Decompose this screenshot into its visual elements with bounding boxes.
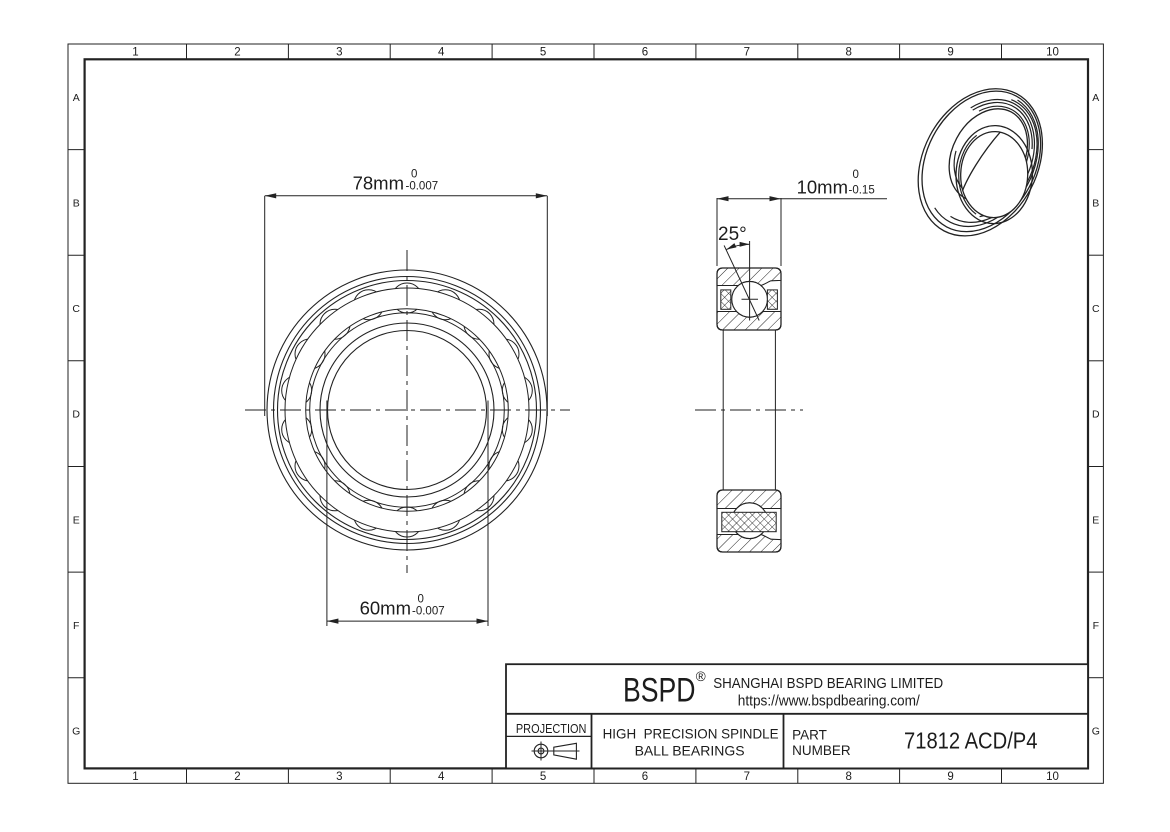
svg-text:9: 9 [947, 771, 953, 783]
svg-text:2: 2 [234, 771, 240, 783]
svg-text:0: 0 [853, 169, 859, 181]
svg-text:PART: PART [792, 728, 827, 743]
svg-text:®: ® [696, 669, 706, 684]
svg-text:C: C [1092, 303, 1100, 315]
svg-text:B: B [73, 197, 80, 209]
svg-text:0: 0 [418, 594, 424, 606]
svg-text:6: 6 [642, 771, 648, 783]
svg-text:E: E [1092, 514, 1099, 526]
svg-text:BSPD: BSPD [623, 672, 696, 710]
svg-text:60mm: 60mm [360, 598, 411, 619]
svg-text:4: 4 [438, 771, 445, 783]
svg-text:HIGH PRECISION SPINDLE: HIGH PRECISION SPINDLE [603, 726, 779, 742]
svg-text:78mm: 78mm [353, 173, 404, 194]
svg-text:D: D [72, 409, 80, 421]
svg-text:1: 1 [132, 47, 138, 59]
svg-text:6: 6 [642, 47, 648, 59]
svg-text:-0.15: -0.15 [849, 184, 875, 196]
svg-text:71812 ACD/P4: 71812 ACD/P4 [904, 728, 1038, 754]
svg-text:8: 8 [845, 47, 851, 59]
svg-text:10: 10 [1046, 47, 1059, 59]
svg-text:A: A [1092, 92, 1099, 104]
svg-text:PROJECTION: PROJECTION [516, 722, 587, 736]
svg-text:A: A [73, 92, 80, 104]
svg-text:0: 0 [411, 169, 417, 181]
svg-text:E: E [73, 514, 80, 526]
svg-text:C: C [72, 303, 80, 315]
svg-text:5: 5 [540, 47, 546, 59]
svg-text:7: 7 [744, 771, 750, 783]
svg-text:SHANGHAI BSPD BEARING LIMITED: SHANGHAI BSPD BEARING LIMITED [713, 675, 943, 692]
svg-text:F: F [1093, 620, 1099, 632]
svg-text:-0.007: -0.007 [406, 181, 439, 193]
svg-text:10: 10 [1046, 771, 1059, 783]
svg-text:9: 9 [947, 47, 953, 59]
svg-text:-0.007: -0.007 [412, 606, 445, 618]
svg-text:4: 4 [438, 47, 445, 59]
svg-text:1: 1 [132, 771, 138, 783]
svg-text:G: G [1092, 726, 1100, 738]
svg-text:5: 5 [540, 771, 546, 783]
svg-text:3: 3 [336, 47, 342, 59]
svg-text:2: 2 [234, 47, 240, 59]
svg-text:F: F [73, 620, 79, 632]
svg-text:10mm: 10mm [797, 176, 848, 197]
svg-text:G: G [72, 726, 80, 738]
svg-text:3: 3 [336, 771, 342, 783]
svg-text:25°: 25° [718, 224, 747, 245]
svg-text:BALL BEARINGS: BALL BEARINGS [635, 743, 745, 759]
svg-text:B: B [1092, 197, 1099, 209]
svg-text:8: 8 [845, 771, 851, 783]
svg-text:https://www.bspdbearing.com/: https://www.bspdbearing.com/ [738, 693, 921, 710]
svg-text:D: D [1092, 409, 1100, 421]
svg-text:NUMBER: NUMBER [792, 743, 851, 758]
svg-text:7: 7 [744, 47, 750, 59]
